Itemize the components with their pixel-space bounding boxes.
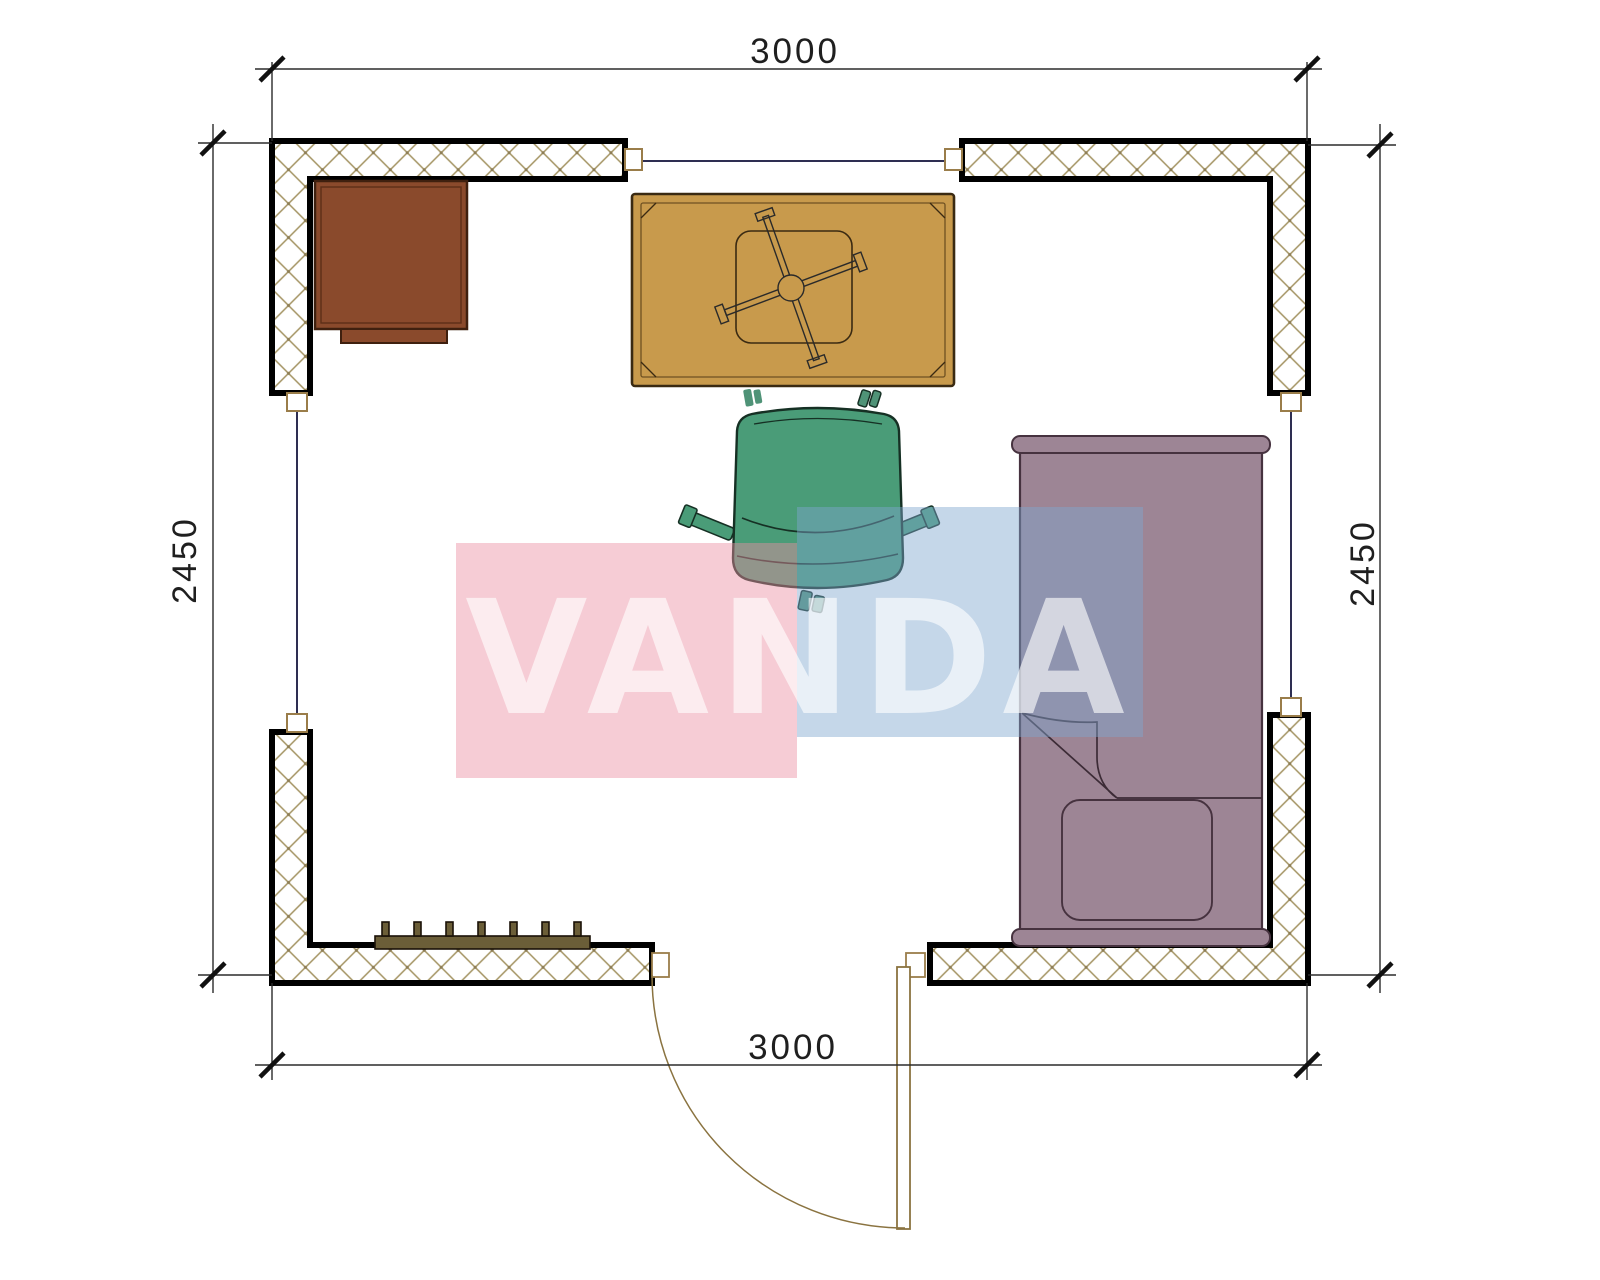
door-jamb-left — [652, 953, 669, 977]
door-leaf — [897, 967, 910, 1229]
dim-label-top: 3000 — [750, 32, 840, 71]
window-left-frame-top — [287, 393, 307, 411]
window-top-frame-left — [625, 149, 642, 170]
radiator-bar — [375, 936, 590, 949]
window-right-frame-top — [1281, 393, 1301, 411]
bed-headboard — [1012, 436, 1270, 453]
dim-label-left: 2450 — [166, 516, 204, 604]
watermark: VANDA — [456, 507, 1143, 778]
dim-label-bottom: 3000 — [748, 1028, 838, 1067]
watermark-text: VANDA — [465, 567, 1135, 751]
bed-footboard — [1012, 929, 1270, 946]
cabinet-base-tab — [341, 329, 447, 343]
window-left-frame-bottom — [287, 714, 307, 732]
window-right-frame-bottom — [1281, 698, 1301, 716]
cabinet-body — [315, 181, 467, 329]
table — [632, 194, 954, 386]
window-top-frame-right — [945, 149, 962, 170]
dim-label-right: 2450 — [1344, 519, 1382, 607]
floor-plan-canvas: 3000 3000 2450 2450 VANDA — [0, 0, 1600, 1280]
table-leg-hub — [778, 275, 804, 301]
cabinet — [315, 181, 467, 343]
